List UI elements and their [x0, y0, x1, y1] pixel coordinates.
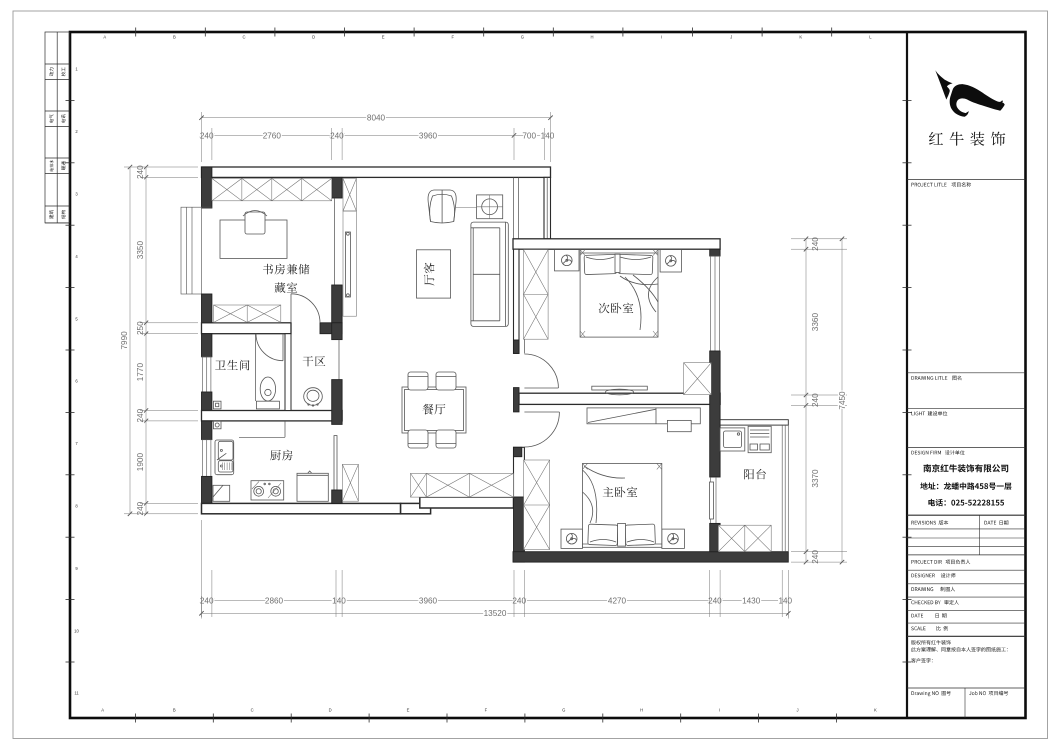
svg-text:F: F	[485, 708, 488, 713]
svg-text:8040: 8040	[367, 114, 386, 123]
svg-text:3370: 3370	[811, 469, 820, 488]
svg-text:D: D	[329, 708, 332, 713]
svg-text:2860: 2860	[265, 597, 284, 606]
svg-text:700: 700	[522, 131, 536, 140]
svg-text:A: A	[101, 708, 104, 713]
svg-text:K: K	[874, 708, 877, 713]
svg-text:3960: 3960	[419, 131, 438, 140]
svg-text:C: C	[251, 708, 254, 713]
svg-text:G: G	[521, 35, 524, 40]
svg-text:3960: 3960	[419, 597, 438, 606]
svg-text:7990: 7990	[120, 331, 129, 350]
svg-text:H: H	[640, 708, 643, 713]
svg-text:1770: 1770	[136, 363, 145, 382]
svg-text:4270: 4270	[608, 597, 627, 606]
svg-text:E: E	[382, 35, 385, 40]
svg-text:10: 10	[74, 628, 79, 633]
svg-text:140: 140	[332, 597, 346, 606]
svg-text:140: 140	[778, 597, 792, 606]
svg-text:K: K	[799, 35, 802, 40]
svg-text:1430: 1430	[742, 597, 761, 606]
svg-text:7450: 7450	[838, 391, 847, 410]
svg-text:D: D	[312, 35, 315, 40]
svg-text:2760: 2760	[263, 131, 282, 140]
svg-text:3350: 3350	[136, 241, 145, 260]
svg-text:140: 140	[541, 131, 555, 140]
svg-text:E: E	[407, 708, 410, 713]
svg-text:11: 11	[74, 691, 79, 696]
svg-text:H: H	[590, 35, 593, 40]
svg-text:B: B	[173, 708, 176, 713]
svg-text:13520: 13520	[484, 609, 507, 618]
svg-text:G: G	[562, 708, 565, 713]
svg-text:I: I	[719, 708, 720, 713]
svg-text:C: C	[242, 35, 245, 40]
svg-text:I: I	[661, 35, 662, 40]
svg-text:1900: 1900	[136, 453, 145, 472]
svg-text:F: F	[452, 35, 455, 40]
svg-text:A: A	[103, 35, 106, 40]
svg-text:B: B	[173, 35, 176, 40]
svg-text:3360: 3360	[811, 313, 820, 332]
svg-text:J: J	[796, 708, 798, 713]
svg-text:J: J	[730, 35, 732, 40]
